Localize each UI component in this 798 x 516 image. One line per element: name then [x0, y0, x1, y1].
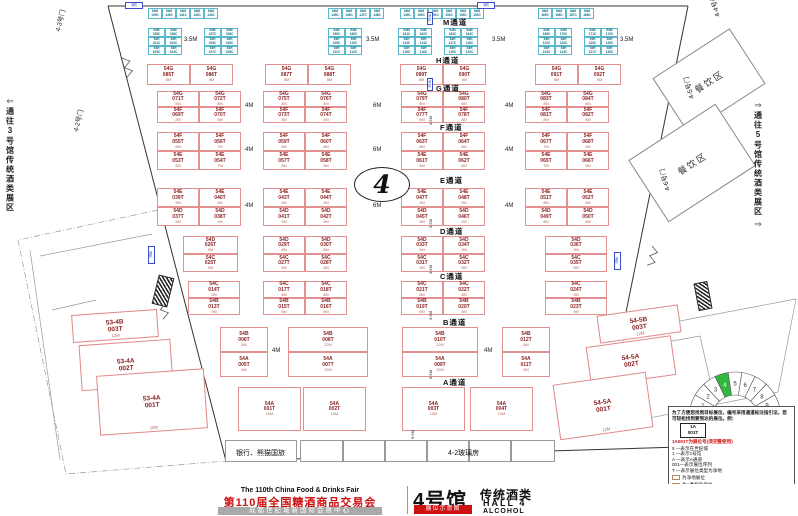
booth-block: 54A001T10M [238, 387, 301, 431]
booth[interactable]: 54D041T9M [263, 207, 305, 226]
booth-dim: 8M [266, 78, 307, 82]
booth-standard-c[interactable]: 54H102C [165, 37, 182, 46]
title-english: The 110th China Food & Drinks Fair [195, 487, 405, 494]
booth-standard-c[interactable]: 54M154C [470, 8, 484, 19]
booth[interactable]: 54F082T8M [567, 107, 609, 123]
booth[interactable]: 54B012T8M [502, 327, 550, 352]
booth[interactable]: 54E062T8M [443, 151, 485, 170]
booth[interactable]: 54E066T9M [567, 151, 609, 170]
booth[interactable]: 54F077T8M [401, 107, 443, 123]
booth[interactable]: 54A011T8M [502, 352, 550, 377]
booth-dim: 9M [264, 201, 304, 205]
legend-keys: 5 —表示在世纪城1 —表示1号馆A —表示A通道001—表示展位序列T —表示… [672, 446, 791, 474]
booth-dim: 12M [289, 368, 367, 372]
booth[interactable]: 54F064T8M [443, 132, 485, 151]
booth[interactable]: 54E039T9M [157, 188, 199, 207]
booth-block: 54F055T6M54F056T7M54E053T6M54E054T7M [157, 132, 241, 170]
aisle-label: M通道 [443, 17, 467, 28]
booth[interactable]: 54D034T9M [443, 236, 485, 254]
dim-label: 6.5M [428, 370, 433, 379]
booth[interactable]: 54G087T8M [265, 64, 308, 85]
booth-block: 54B010T12M54A009T12M [402, 327, 478, 377]
booth-standard-c[interactable]: 54M167C [566, 8, 580, 19]
booth-standard-c[interactable]: 54M156C [165, 28, 182, 37]
booth-standard-c[interactable]: 54H110C [345, 37, 362, 46]
gap-dim-label: 4M [272, 348, 280, 354]
booth[interactable]: 54F074T8M [305, 107, 347, 123]
dim-label: 3.5M [366, 37, 379, 43]
booth[interactable]: 54B013T9M [188, 298, 240, 315]
cyan-block: 54M139C54M140C54M141C54M142C54M143C [148, 8, 218, 19]
booth-block: 54C021T8M54C022T8M54B019T8M54B020T8M [401, 281, 485, 315]
aisle-label: D通道 [440, 226, 463, 237]
booth[interactable]: 54B023T9M [545, 298, 607, 315]
booth-standard-c[interactable]: 54H121C [538, 37, 555, 46]
booth-dim: 9M [546, 293, 606, 297]
booth-standard-c[interactable]: 54M157C [204, 28, 221, 37]
booth-block: 54B006T8M54A005T8M [220, 327, 268, 377]
aisle-label: E通道 [440, 175, 463, 186]
booth-standard-c[interactable]: 54H116C [415, 46, 432, 55]
venue-label: 成都世纪城新国际会展中心 [218, 507, 382, 515]
booth-block: 54G085T8M54G086T8M [147, 64, 233, 85]
booth[interactable]: 54A005T8M [220, 352, 268, 377]
booth-dim: 6M [158, 164, 198, 168]
gap-dim-label: 4M [505, 103, 513, 109]
booth-block: 54E039T9M54E040T9M54D037T9M54D038T9M [157, 188, 241, 226]
booth-dim: 8M [444, 102, 484, 106]
aisle-label: H通道 [436, 55, 459, 66]
hall-category-en: ALCOHOL [483, 508, 525, 515]
booth-standard-c[interactable]: 54M169C [538, 28, 555, 37]
booth[interactable]: 54E043T9M [263, 188, 305, 207]
booth-block: 54G075T8M54G076T8M54F073T8M54F074T8M [263, 91, 347, 123]
fire-facility-marker: 消防 [125, 2, 143, 9]
booth-block: 54G071T8M54G072T8M54F069T8M54F070T8M [157, 91, 241, 123]
booth[interactable]: 54G072T8M [199, 91, 241, 107]
booth-standard-c[interactable]: 54H101C [148, 37, 165, 46]
booth-dim: 9M [546, 310, 606, 314]
booth[interactable]: 54G084T8M [567, 91, 609, 107]
booth[interactable]: 54E048T9M [443, 188, 485, 207]
booth-standard-c[interactable]: 54H107C [204, 46, 221, 55]
booth-dim: 8M [526, 220, 566, 224]
booth-standard-c[interactable]: 54H128C [601, 46, 618, 55]
booth[interactable]: 54A003T10M [402, 387, 465, 431]
booth-dim: 8M [191, 78, 232, 82]
booth[interactable]: 54F078T8M [443, 107, 485, 123]
gap-dim-label: 4M [245, 103, 253, 109]
hall-title-en: HALL 4 [483, 498, 526, 508]
hall-number-ellipse: 4 [354, 167, 410, 202]
booth[interactable]: 54B016T8M [305, 298, 347, 315]
booth[interactable]: 54C032T9M [443, 254, 485, 272]
dim-label: 3.5M [428, 311, 433, 320]
divider [407, 486, 408, 514]
booth-dim: 8M [526, 102, 566, 106]
booth-standard-c[interactable]: 54H109C [328, 37, 345, 46]
booth-standard-c[interactable]: 54M139C [148, 8, 162, 19]
booth-dim: 8M [221, 343, 267, 347]
booth-large[interactable]: 53-4A001T12M [96, 368, 208, 435]
booth-dim: 8M [402, 164, 442, 168]
booth-dim: 8M [264, 248, 304, 252]
booth-dim: 8M [306, 266, 346, 270]
booth-standard-c[interactable]: 54H123C [538, 46, 555, 55]
booth-standard-c[interactable]: 54H113C [398, 37, 415, 46]
booth[interactable]: 54G076T8M [305, 91, 347, 107]
booth-standard-c[interactable]: 54H115C [398, 46, 415, 55]
booth-dim: 8M [306, 293, 346, 297]
booth[interactable]: 54D050T8M [567, 207, 609, 226]
booth-block: 54E047T9M54E048T9M54D045T9M54D046T9M [401, 188, 485, 226]
booth[interactable]: 54C035T9M [545, 254, 607, 272]
booth-block: 54G079T8M54G080T8M54F077T8M54F078T8M [401, 91, 485, 123]
booth-dim: 8M [306, 164, 346, 168]
booth-standard-c[interactable]: 54M163C [444, 28, 461, 37]
booth[interactable]: 54C014T9M [188, 281, 240, 298]
booth-dim: 9M [546, 248, 606, 252]
booth[interactable]: 54C021T8M [401, 281, 443, 298]
booth-dim: 8M [444, 145, 484, 149]
fire-facility-marker: 消防 [427, 78, 433, 91]
booth[interactable]: 54A009T12M [402, 352, 478, 377]
booth[interactable]: 54A002T10M [303, 387, 366, 431]
booth-dim: 9M [402, 220, 442, 224]
booth-dim: 9M [189, 310, 239, 314]
legend-swatch-row: 为净地展位 [672, 475, 791, 481]
booth-standard-c[interactable]: 54M159C [328, 28, 345, 37]
booth-large[interactable]: 53-4B003T12M [71, 309, 159, 343]
booth[interactable]: 54D038T9M [199, 207, 241, 226]
booth-dim: 8M [306, 145, 346, 149]
booth[interactable]: 54A007T12M [288, 352, 368, 377]
booth[interactable]: 54B006T8M [220, 327, 268, 352]
booth[interactable]: 54G092T8M [578, 64, 621, 85]
booth-block: 54E043T9M54E044T9M54D041T9M54D042T9M [263, 188, 347, 226]
booth[interactable]: 54C022T8M [443, 281, 485, 298]
booth-dim: 9M [306, 220, 346, 224]
dim-label: 3.5M [492, 37, 505, 43]
booth-dim: 8M [402, 102, 442, 106]
booth[interactable]: 54D046T9M [443, 207, 485, 226]
booth-standard-c[interactable]: 54M170C [555, 28, 572, 37]
dim-label: 3.5M [620, 37, 633, 43]
booth-standard-c[interactable]: 54H104C [165, 46, 182, 55]
booth[interactable]: 54C031T9M [401, 254, 443, 272]
booth-standard-c[interactable]: 54H127C [584, 46, 601, 55]
booth-standard-c[interactable]: 54M155C [148, 28, 165, 37]
booth[interactable]: 54D037T9M [157, 207, 199, 226]
aisle-label: F通道 [440, 122, 463, 133]
booth-standard-c[interactable]: 54M164C [461, 28, 478, 37]
booth-standard-c[interactable]: 54M168C [580, 8, 594, 19]
booth-standard-c[interactable]: 54H119C [444, 46, 461, 55]
booth-standard-c[interactable]: 54H120C [461, 46, 478, 55]
booth-dim: 10M [304, 412, 365, 416]
gap-dim-label: 4M [245, 147, 253, 153]
booth[interactable]: 54C027T8M [263, 254, 305, 272]
booth[interactable]: 54F073T8M [263, 107, 305, 123]
gap-dim-label: 6M [373, 203, 381, 209]
corridor-to-hall3: ⇐ 通往3号馆传统酒类展区 [2, 96, 18, 215]
aisle-label: C通道 [440, 271, 463, 282]
booth[interactable]: 54C025T9M [183, 254, 238, 272]
booth-dim: 12M [289, 343, 367, 347]
arrow-left-icon: ⇐ [2, 96, 18, 107]
gap-dim-label: 6M [373, 103, 381, 109]
booth-block: 54C024T9M54B023T9M [545, 281, 607, 315]
title-block: The 110th China Food & Drinks Fair 第110届… [0, 484, 798, 516]
booth-standard-c[interactable]: 54H103C [148, 46, 165, 55]
booth-dim: 9M [184, 266, 237, 270]
aisle-label: A通道 [443, 377, 466, 388]
booth-standard-c[interactable]: 54H112C [345, 46, 362, 55]
floor-plan: 4 餐饮区 餐饮区 ⇐ 通往3号馆传统酒类展区 ⇒ 通往5号馆传统酒类展区 ⇒ … [0, 0, 798, 516]
booth-standard-c[interactable]: 54M162C [415, 28, 432, 37]
booth[interactable]: 54E053T6M [157, 151, 199, 170]
booth[interactable]: 54D026T9M [183, 236, 238, 254]
booth[interactable]: 54G083T8M [525, 91, 567, 107]
booth-dim: 9M [444, 266, 484, 270]
booth-standard-c[interactable]: 54H118C [461, 37, 478, 46]
booth-standard-c[interactable]: 54M140C [162, 8, 176, 19]
booth-dim: 9M [402, 201, 442, 205]
booth-standard-c[interactable]: 54H124C [555, 46, 572, 55]
booth[interactable]: 54E061T8M [401, 151, 443, 170]
booth-dim: 9M [402, 248, 442, 252]
booth-standard-c[interactable]: 54M143C [204, 8, 218, 19]
booth-standard-c[interactable]: 54H117C [444, 37, 461, 46]
booth-block: 54B012T8M54A011T8M [502, 327, 550, 377]
booth[interactable]: 54G086T8M [190, 64, 233, 85]
plan-badge: 展位示意图 [414, 505, 472, 514]
booth[interactable]: 54D036T9M [545, 236, 607, 254]
booth-dim: 8M [444, 164, 484, 168]
booth-block: 54A002T10M [303, 387, 366, 431]
booth-dim: 12M [403, 368, 477, 372]
booth-dim: 9M [568, 145, 608, 149]
booth[interactable]: 54C028T8M [305, 254, 347, 272]
booth-dim: 8M [306, 118, 346, 122]
booth[interactable]: 54F063T8M [401, 132, 443, 151]
booth[interactable]: 54D030T8M [305, 236, 347, 254]
booth-standard-c[interactable]: 54M142C [190, 8, 204, 19]
booth-standard-c[interactable]: 54M171C [584, 28, 601, 37]
booth-block: 54B008T12M54A007T12M [288, 327, 368, 377]
booth-standard-c[interactable]: 54M146C [342, 8, 356, 19]
booth-dim: 8M [503, 368, 549, 372]
booth-block: 54F059T8M54F060T8M54E057T8M54E058T8M [263, 132, 347, 170]
booth-standard-c[interactable]: 54M145C [328, 8, 342, 19]
booth-standard-c[interactable]: 54H111C [328, 46, 345, 55]
booth-dim: 8M [402, 118, 442, 122]
booth-standard-c[interactable]: 54M166C [552, 8, 566, 19]
booth[interactable]: 54B019T8M [401, 298, 443, 315]
booth-block: 54G087T8M54G088T8M [265, 64, 351, 85]
booth[interactable]: 54E058T8M [305, 151, 347, 170]
booth[interactable]: 54E052T8M [567, 188, 609, 207]
booth-standard-c[interactable]: 54H105C [204, 37, 221, 46]
arrow-right-icon: ⇒ [750, 219, 766, 230]
booth-dim: 7M [200, 164, 240, 168]
booth-block: 54D033T9M54D034T9M54C031T9M54C032T9M [401, 236, 485, 272]
booth[interactable]: 54F055T6M [157, 132, 199, 151]
aisle-label: B通道 [443, 317, 466, 328]
booth[interactable]: 54G075T8M [263, 91, 305, 107]
booth[interactable]: 54A004T10M [470, 387, 533, 431]
booth[interactable]: 54G088T8M [308, 64, 351, 85]
cyan-block: 54M157C54M158C54H105C54H106C54H107C54H10… [204, 28, 238, 55]
booth-dim: 10M [471, 412, 532, 416]
booth[interactable]: 54F068T9M [567, 132, 609, 151]
gap-dim-label: 6M [373, 147, 381, 153]
dining-area-label: 餐饮区 [692, 67, 727, 96]
booth-dim: 9M [200, 220, 240, 224]
legend-example: 1A001T [680, 423, 706, 438]
booth-dim: 7M [200, 145, 240, 149]
booth-dim: 9M [568, 164, 608, 168]
booth-standard-c[interactable]: 54H106C [221, 37, 238, 46]
booth-dim: 8M [444, 78, 485, 82]
booth[interactable]: 54B015T8M [263, 298, 305, 315]
booth-block: 54D026T9M54C025T9M [183, 236, 238, 272]
booth[interactable]: 54F067T7M [525, 132, 567, 151]
booth-dim: 8M [568, 220, 608, 224]
cyan-block: 54M165C54M166C54M167C54M168C [538, 8, 594, 19]
booth-dim: 8M [264, 145, 304, 149]
dim-label: 3.5M [184, 37, 197, 43]
booth-dim: 9M [158, 220, 198, 224]
gap-dim-label: 4M [505, 203, 513, 209]
cyan-block: 54M163C54M164C54H117C54H118C54H119C54H12… [444, 28, 478, 55]
booth[interactable]: 54E065T7M [525, 151, 567, 170]
booth-dim: 9M [402, 266, 442, 270]
booth-block: 54A004T10M [470, 387, 533, 431]
booth[interactable]: 54D045T9M [401, 207, 443, 226]
dim-label: 3.5M [428, 265, 433, 274]
booth-dim: 9M [444, 220, 484, 224]
booth-standard-c[interactable]: 54M172C [601, 28, 618, 37]
booth[interactable]: 54A001T10M [238, 387, 301, 431]
booth-dim: 6M [158, 145, 198, 149]
booth-dim: 9M [189, 293, 239, 297]
booth-standard-c[interactable]: 54H125C [584, 37, 601, 46]
booth-standard-c[interactable]: 54M147C [356, 8, 370, 19]
hall-number: 4 [373, 170, 390, 199]
booth[interactable]: 54G091T8M [535, 64, 578, 85]
booth-dim: 8M [264, 310, 304, 314]
dim-label: 3.5M [428, 219, 433, 228]
booth-dim: 8M [200, 118, 240, 122]
booth-standard-c[interactable]: 54H114C [415, 37, 432, 46]
booth-dim: 8M [526, 118, 566, 122]
booth-standard-c[interactable]: 54M158C [221, 28, 238, 37]
booth[interactable]: 54F069T8M [157, 107, 199, 123]
booth-dim: 9M [444, 248, 484, 252]
booth-dim: 9M [158, 201, 198, 205]
booth-dim: 8M [306, 248, 346, 252]
booth-block: 54C014T9M54B013T9M [188, 281, 240, 315]
booth-dim: 8M [306, 102, 346, 106]
booth[interactable]: 54F081T8M [525, 107, 567, 123]
booth[interactable]: 54F070T8M [199, 107, 241, 123]
booth[interactable]: 54E054T7M [199, 151, 241, 170]
cyan-block: 54M161C54M162C54H113C54H114C54H115C54H11… [398, 28, 432, 55]
booth[interactable]: 54F056T7M [199, 132, 241, 151]
booth-standard-c[interactable]: 54M161C [398, 28, 415, 37]
arrow-right-icon: ⇒ [750, 100, 766, 111]
dim-label: 4-2玻璃房 [448, 448, 479, 458]
swatch-icon [672, 475, 680, 480]
booth-block: 54D036T9M54C035T9M [545, 236, 607, 272]
booth[interactable]: 54G071T8M [157, 91, 199, 107]
booth[interactable]: 54G089T8M [400, 64, 443, 85]
booth-dim: 9M [200, 201, 240, 205]
booth[interactable]: 54G085T8M [147, 64, 190, 85]
booth[interactable]: 54B020T8M [443, 298, 485, 315]
booth-dim: 8M [264, 164, 304, 168]
cyan-block: 54M169C54M170C54H121C54H122C54H123C54H12… [538, 28, 572, 55]
booth[interactable]: 54C024T9M [545, 281, 607, 298]
booth[interactable]: 54F059T8M [263, 132, 305, 151]
booth-standard-c[interactable]: 54M150C [414, 8, 428, 19]
booth-dim: 9M [306, 201, 346, 205]
booth[interactable]: 54G090T8M [443, 64, 486, 85]
booth-dim: 8M [526, 201, 566, 205]
cyan-block: 54M155C54M156C54H101C54H102C54H103C54H10… [148, 28, 182, 55]
booth-dim: 8M [401, 78, 442, 82]
booth-standard-c[interactable]: 54M160C [345, 28, 362, 37]
corridor-to-hall5: ⇒ 通往5号馆传统酒类展区 ⇒ [750, 100, 766, 230]
booth-dim: 8M [158, 102, 198, 106]
booth-block: 54G083T8M54G084T8M54F081T8M54F082T8M [525, 91, 609, 123]
booth-standard-c[interactable]: 54M165C [538, 8, 552, 19]
gap-dim-label: 4M [505, 147, 513, 153]
booth-standard-c[interactable]: 54M149C [400, 8, 414, 19]
booth-standard-c[interactable]: 54H122C [555, 37, 572, 46]
booth-dim: 8M [148, 78, 189, 82]
booth[interactable]: 54F060T8M [305, 132, 347, 151]
booth[interactable]: 54B008T12M [288, 327, 368, 352]
booth[interactable]: 54D033T9M [401, 236, 443, 254]
booth[interactable]: 54D049T8M [525, 207, 567, 226]
booth[interactable]: 54C017T8M [263, 281, 305, 298]
fire-facility-marker: 消防 [427, 12, 433, 25]
booth-standard-c[interactable]: 54H126C [601, 37, 618, 46]
booth[interactable]: 54E057T8M [263, 151, 305, 170]
corridor-left-label: 通往3号馆传统酒类展区 [5, 107, 16, 213]
booth-dim: 9M [444, 201, 484, 205]
booth[interactable]: 54E044T9M [305, 188, 347, 207]
booth-dim: 8M [568, 102, 608, 106]
booth-dim: 8M [221, 368, 267, 372]
booth-dim: 7M [526, 164, 566, 168]
fire-facility-marker: 消防 [614, 252, 621, 270]
booth[interactable]: 54D042T9M [305, 207, 347, 226]
booth[interactable]: 54E040T9M [199, 188, 241, 207]
booth[interactable]: 54D029T8M [263, 236, 305, 254]
booth-dim: 8M [402, 310, 442, 314]
booth-standard-c[interactable]: 54H108C [221, 46, 238, 55]
booth[interactable]: 54E051T8M [525, 188, 567, 207]
booth-standard-c[interactable]: 54M141C [176, 8, 190, 19]
booth[interactable]: 54C018T8M [305, 281, 347, 298]
booth-dim: 8M [444, 310, 484, 314]
booth-standard-c[interactable]: 54M148C [370, 8, 384, 19]
booth-block: 54F067T7M54F068T9M54E065T7M54E066T9M [525, 132, 609, 170]
booth[interactable]: 54B010T12M [402, 327, 478, 352]
